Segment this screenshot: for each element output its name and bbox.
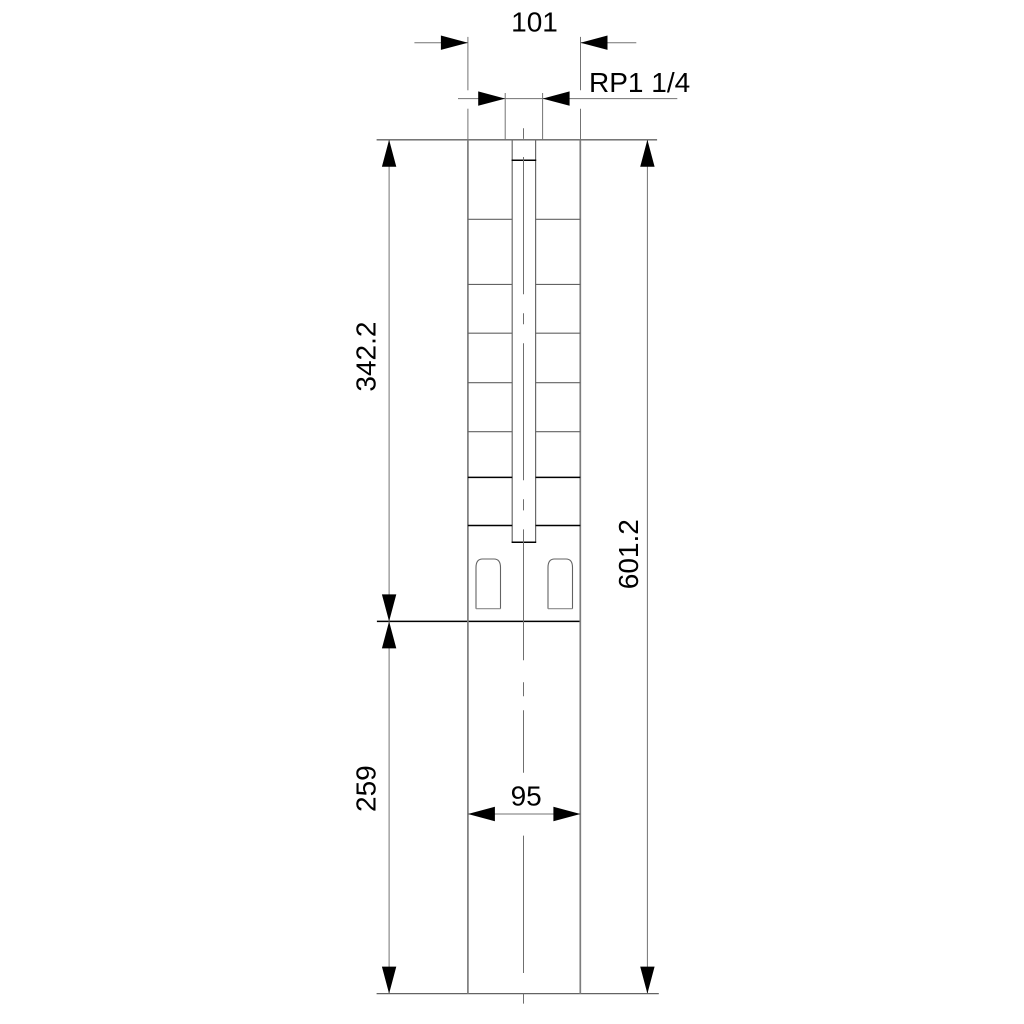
svg-text:601.2: 601.2: [613, 519, 644, 589]
svg-text:RP1 1/4: RP1 1/4: [589, 67, 690, 98]
svg-text:259: 259: [350, 765, 381, 812]
svg-text:342.2: 342.2: [350, 322, 381, 392]
svg-text:95: 95: [511, 781, 542, 812]
svg-text:101: 101: [511, 7, 558, 38]
